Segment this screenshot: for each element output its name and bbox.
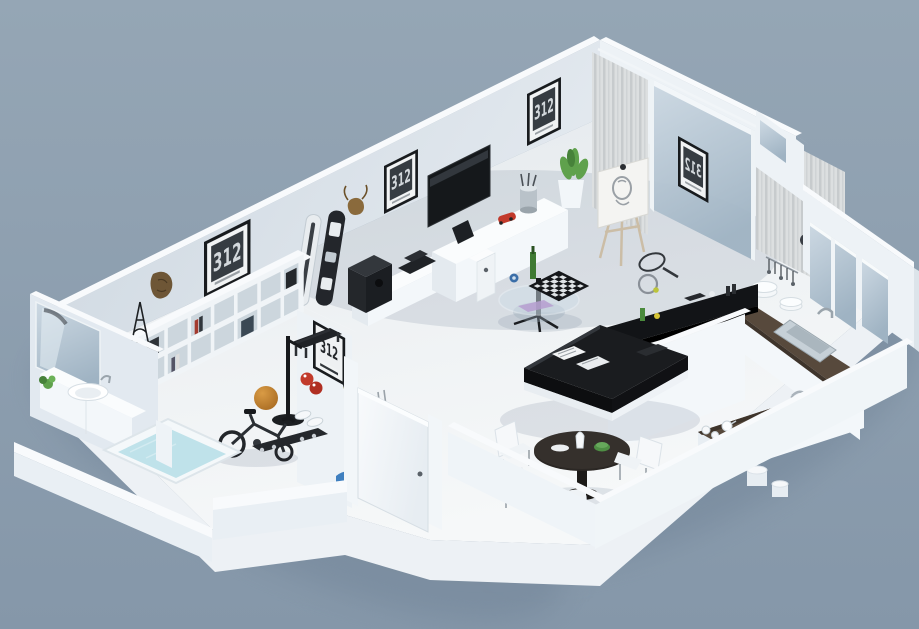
door-jamb-right: [428, 414, 442, 530]
bathroom-divider: [156, 420, 172, 468]
door-handle[interactable]: [418, 472, 423, 477]
exercise-ball: [254, 386, 278, 410]
brush-cup: [520, 173, 537, 214]
wine-bottle: [530, 252, 536, 279]
isometric-scene: 312 312 312: [0, 0, 919, 629]
bar-stool-2: [772, 481, 788, 497]
lemon: [654, 313, 660, 319]
carafe: [576, 432, 584, 448]
bottle-green: [640, 308, 645, 321]
apartment-render: 312 312 312: [0, 0, 919, 629]
